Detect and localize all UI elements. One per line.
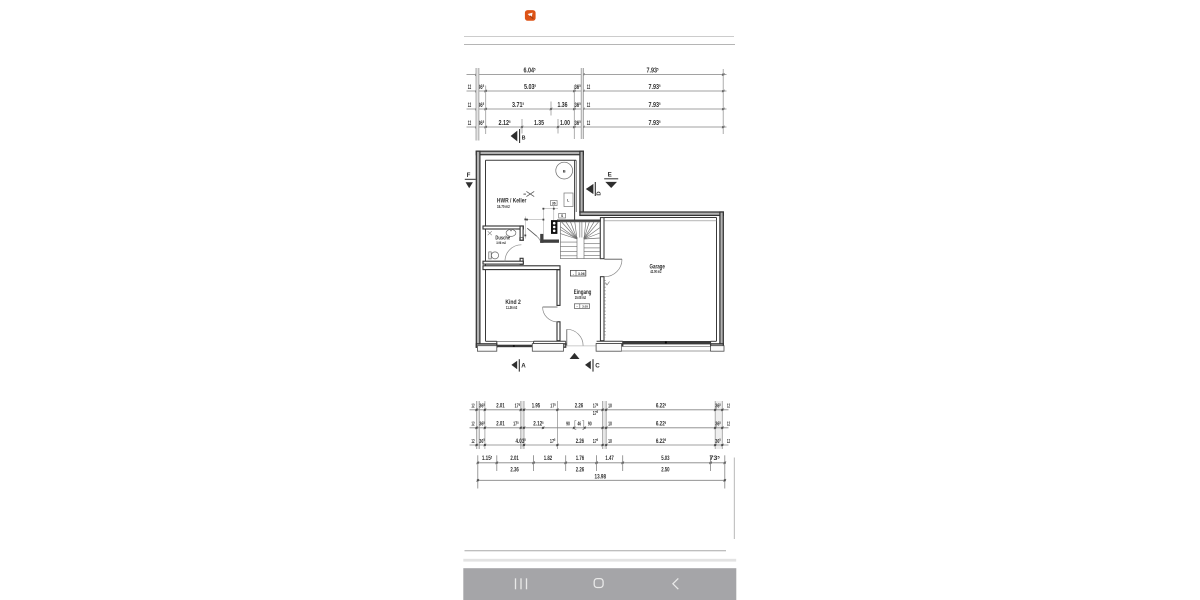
svg-text:m: m [524, 192, 527, 196]
svg-text:90: 90 [566, 422, 570, 428]
svg-text:12: 12 [471, 439, 474, 445]
svg-text:D: D [596, 191, 602, 195]
svg-text:175: 175 [593, 438, 598, 445]
svg-text:A: A [521, 363, 526, 370]
svg-text:6.225: 6.225 [656, 403, 666, 410]
svg-text:B: B [522, 135, 526, 141]
svg-text:1.95: 1.95 [532, 403, 541, 410]
svg-text:1.155: 1.155 [482, 455, 492, 462]
svg-text:7.935: 7.935 [649, 82, 661, 91]
svg-text:1.00: 1.00 [560, 118, 570, 127]
svg-text:F: F [467, 172, 471, 179]
svg-text:12: 12 [727, 422, 730, 428]
svg-text:175: 175 [550, 403, 555, 410]
svg-text:12: 12 [587, 85, 591, 91]
svg-text:12: 12 [587, 121, 591, 127]
svg-text:365: 365 [574, 102, 580, 109]
svg-text:175: 175 [513, 421, 518, 428]
svg-text:7.935: 7.935 [649, 118, 661, 127]
svg-text:12: 12 [468, 121, 472, 127]
svg-text:1.35: 1.35 [534, 118, 544, 127]
svg-text:E: E [608, 172, 612, 179]
svg-text:365: 365 [479, 403, 484, 410]
svg-text:175: 175 [550, 438, 555, 445]
svg-text:735: 735 [709, 455, 719, 462]
svg-text:46: 46 [578, 422, 582, 428]
svg-text:12: 12 [468, 103, 472, 109]
svg-text:-: - [576, 304, 577, 308]
svg-text:1.47: 1.47 [605, 455, 614, 462]
svg-text:2.26: 2.26 [576, 467, 585, 474]
svg-text:12: 12 [727, 439, 730, 445]
svg-text:10: 10 [608, 404, 612, 410]
svg-text:365: 365 [479, 421, 484, 428]
svg-text:2.01: 2.01 [510, 455, 519, 462]
svg-text:7.935: 7.935 [647, 65, 659, 74]
svg-text:6.045: 6.045 [524, 65, 536, 74]
svg-text:12: 12 [471, 404, 474, 410]
svg-text:175: 175 [593, 403, 598, 410]
svg-text:6.225: 6.225 [656, 421, 666, 428]
svg-text:2.01: 2.01 [496, 403, 505, 410]
svg-text:1.82: 1.82 [544, 455, 553, 462]
svg-text:B: B [563, 168, 566, 173]
svg-text:12: 12 [471, 422, 474, 428]
svg-text:15.70 m2: 15.70 m2 [497, 204, 510, 209]
svg-text:10: 10 [608, 422, 612, 428]
svg-text:2.125: 2.125 [533, 421, 543, 428]
svg-text:1.76: 1.76 [576, 455, 585, 462]
svg-text:12: 12 [727, 404, 730, 410]
svg-text:2.36: 2.36 [510, 467, 519, 474]
svg-text:175: 175 [515, 403, 520, 410]
svg-text:10: 10 [608, 439, 612, 445]
svg-text:42.00 m2: 42.00 m2 [650, 269, 662, 274]
svg-text:11.36 m2: 11.36 m2 [506, 305, 518, 310]
svg-text:4.035: 4.035 [516, 438, 526, 445]
svg-text:13.98: 13.98 [595, 474, 607, 481]
svg-text:-: - [573, 272, 574, 276]
svg-text:15.08 m2: 15.08 m2 [575, 295, 587, 300]
svg-text:365: 365 [479, 438, 484, 445]
svg-text:90: 90 [588, 422, 592, 428]
svg-text:2.26: 2.26 [575, 403, 584, 410]
svg-text:175: 175 [593, 410, 598, 417]
svg-text:3.98 m2: 3.98 m2 [496, 241, 506, 245]
svg-text:3.715: 3.715 [512, 100, 524, 109]
svg-text:6.225: 6.225 [656, 438, 666, 445]
svg-text:2.26: 2.26 [576, 438, 585, 445]
svg-text:7.935: 7.935 [649, 100, 661, 109]
svg-text:2.01: 2.01 [496, 421, 505, 428]
svg-text:36: 36 [552, 202, 556, 206]
svg-text:365: 365 [574, 84, 580, 91]
svg-text:5.03: 5.03 [661, 455, 670, 462]
svg-text:365: 365 [574, 120, 580, 127]
svg-text:12: 12 [587, 103, 591, 109]
svg-text:2.50: 2.50 [661, 467, 670, 474]
svg-text:C: C [595, 363, 600, 370]
svg-text:1.36: 1.36 [558, 100, 568, 109]
svg-text:3.05: 3.05 [582, 304, 588, 308]
svg-text:3.06: 3.06 [578, 272, 585, 276]
svg-text:2.125: 2.125 [499, 118, 511, 127]
svg-text:12: 12 [468, 85, 472, 91]
svg-text:5.035: 5.035 [524, 82, 536, 91]
